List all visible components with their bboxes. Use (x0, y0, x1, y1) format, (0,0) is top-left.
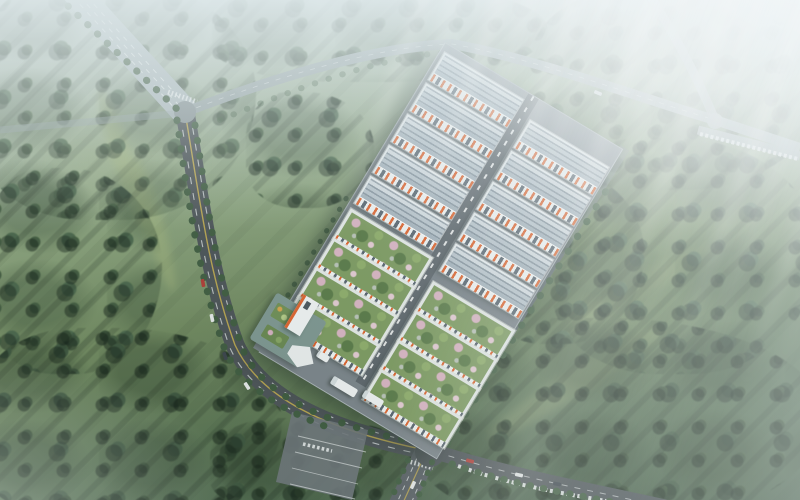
aerial-architectural-rendering (0, 0, 800, 500)
color-grade-overlay (0, 0, 800, 500)
